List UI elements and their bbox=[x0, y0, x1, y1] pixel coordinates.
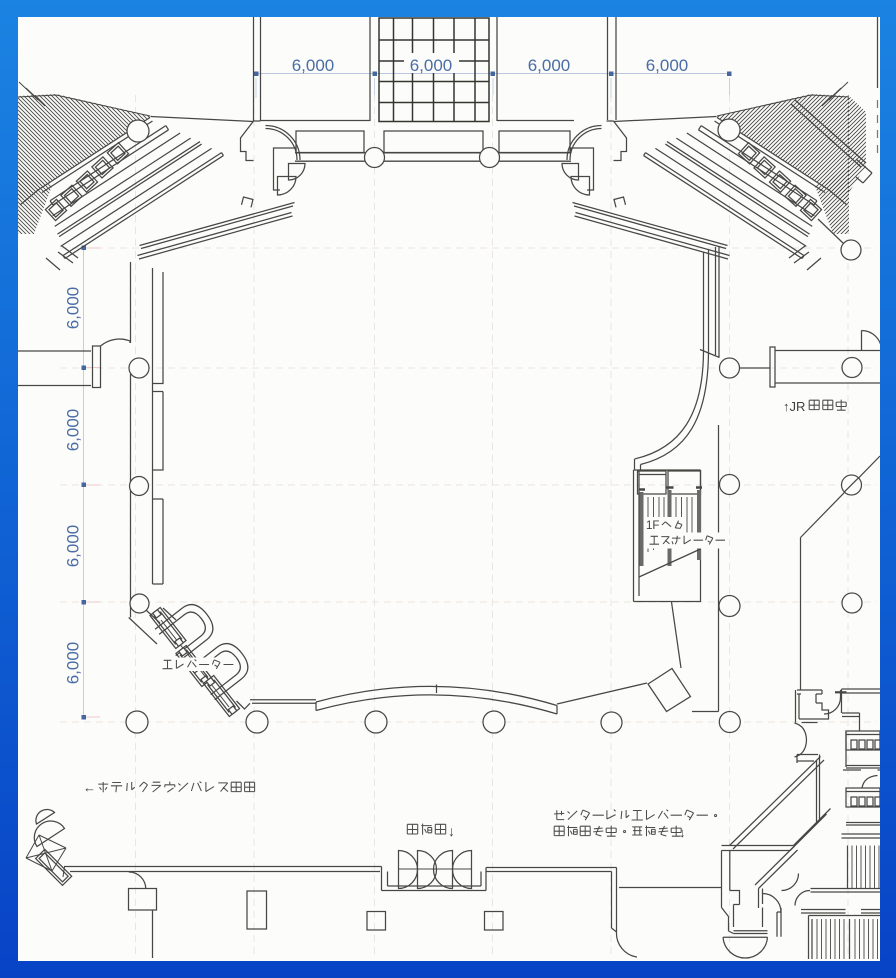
svg-text:←: ← bbox=[83, 780, 96, 795]
svg-text:6,000: 6,000 bbox=[646, 56, 689, 75]
svg-text:6,000: 6,000 bbox=[410, 56, 453, 75]
svg-text:↓: ↓ bbox=[679, 825, 686, 840]
svg-text:6,000: 6,000 bbox=[64, 409, 83, 452]
svg-text:6,000: 6,000 bbox=[64, 287, 83, 330]
svg-text:↑JR: ↑JR bbox=[783, 399, 805, 414]
svg-text:↓: ↓ bbox=[448, 823, 455, 839]
svg-text:6,000: 6,000 bbox=[292, 56, 335, 75]
svg-text:6,000: 6,000 bbox=[528, 56, 571, 75]
svg-text:6,000: 6,000 bbox=[64, 525, 83, 568]
svg-text:6,000: 6,000 bbox=[64, 642, 83, 685]
svg-text:1F: 1F bbox=[646, 520, 659, 532]
